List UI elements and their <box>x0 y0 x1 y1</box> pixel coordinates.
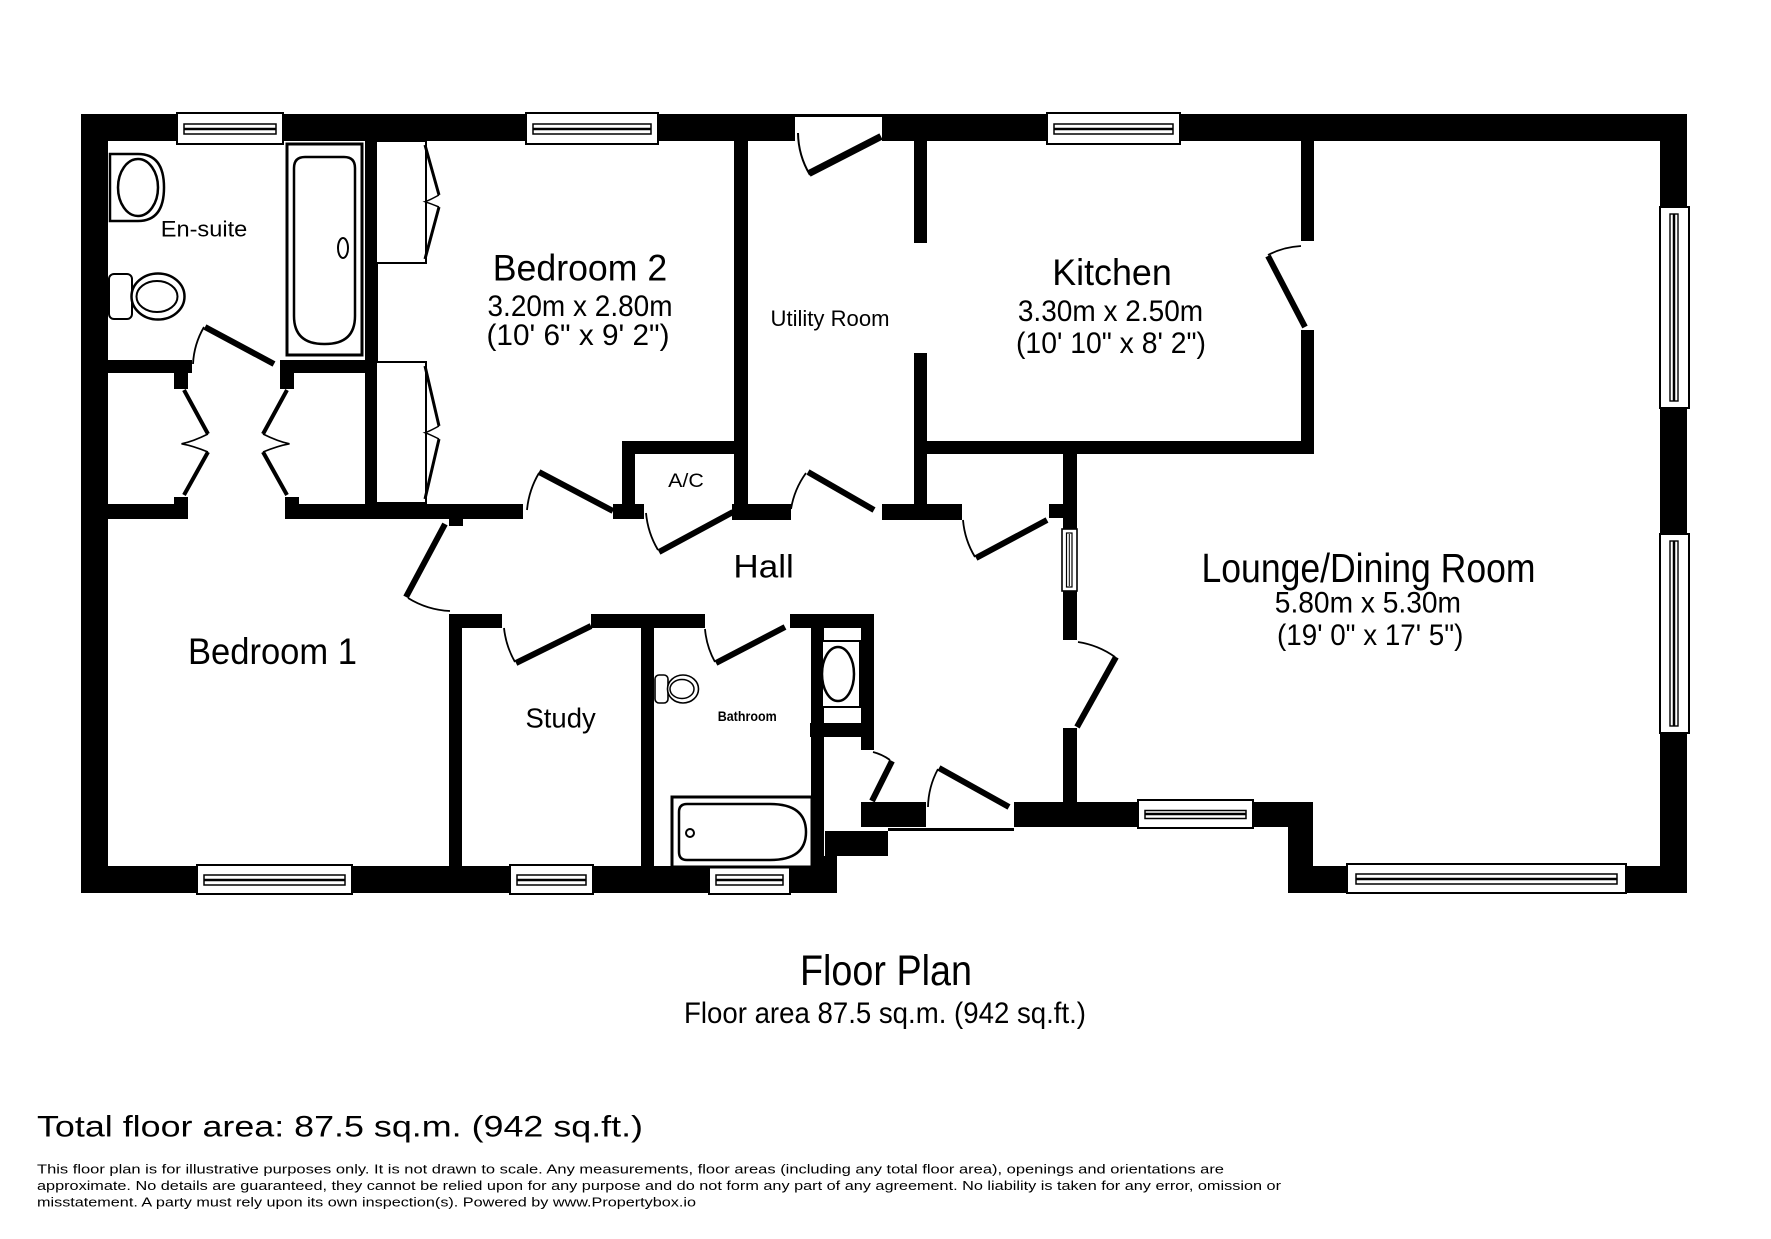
svg-text:(19' 0" x 17' 5"): (19' 0" x 17' 5") <box>1277 619 1463 652</box>
svg-text:misstatement. A party must rel: misstatement. A party must rely upon its… <box>37 1195 696 1210</box>
svg-text:Bedroom 2: Bedroom 2 <box>493 248 668 289</box>
svg-text:(10' 10" x 8' 2"): (10' 10" x 8' 2") <box>1016 327 1206 360</box>
svg-text:En-suite: En-suite <box>161 217 248 242</box>
svg-text:5.80m x 5.30m: 5.80m x 5.30m <box>1275 587 1461 620</box>
svg-text:Kitchen: Kitchen <box>1052 251 1172 293</box>
svg-text:Floor Plan: Floor Plan <box>800 947 972 995</box>
svg-text:This floor plan is for illustr: This floor plan is for illustrative purp… <box>37 1162 1224 1177</box>
svg-text:A/C: A/C <box>668 471 704 492</box>
svg-text:3.30m x 2.50m: 3.30m x 2.50m <box>1018 295 1203 328</box>
svg-text:Floor area 87.5 sq.m. (942 sq.: Floor area 87.5 sq.m. (942 sq.ft.) <box>684 997 1086 1030</box>
svg-text:Utility Room: Utility Room <box>771 306 890 331</box>
svg-text:Study: Study <box>525 703 596 734</box>
svg-text:Lounge/Dining Room: Lounge/Dining Room <box>1202 545 1536 591</box>
svg-text:Hall: Hall <box>733 549 793 585</box>
svg-text:Total floor area: 87.5 sq.m. (: Total floor area: 87.5 sq.m. (942 sq.ft.… <box>37 1111 643 1144</box>
svg-text:(10' 6" x 9' 2"): (10' 6" x 9' 2") <box>487 319 670 352</box>
svg-text:Bathroom: Bathroom <box>718 709 777 724</box>
svg-text:Bedroom 1: Bedroom 1 <box>188 631 357 672</box>
svg-text:approximate. No details are gu: approximate. No details are guaranteed, … <box>37 1178 1282 1193</box>
